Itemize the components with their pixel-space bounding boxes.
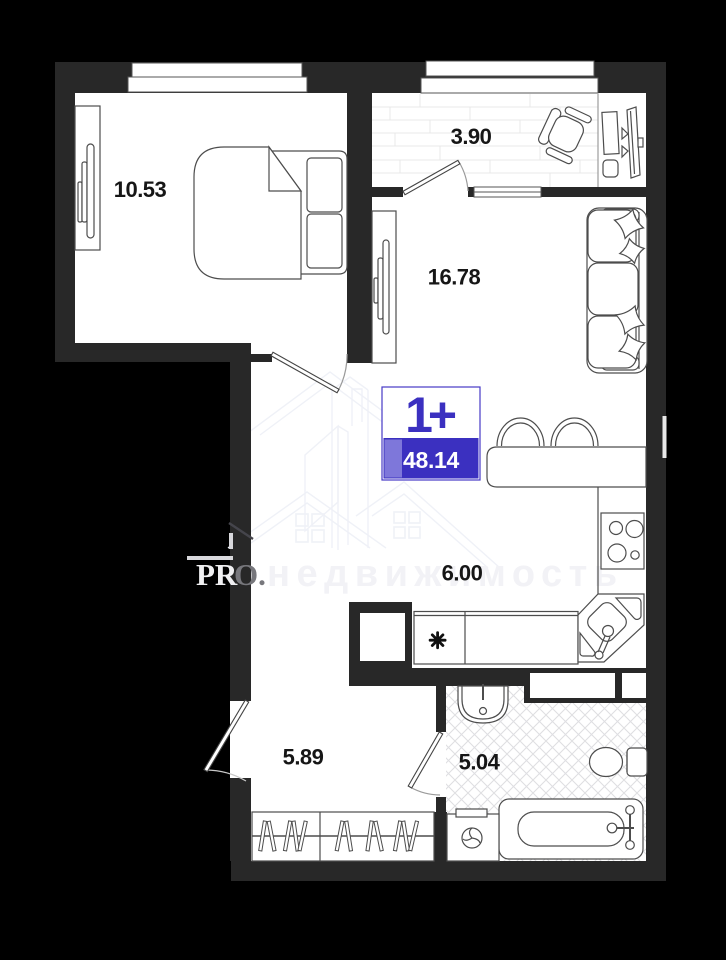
svg-text:16.78: 16.78 xyxy=(428,265,481,290)
svg-text:10.53: 10.53 xyxy=(114,177,167,202)
svg-text:3.90: 3.90 xyxy=(451,124,492,149)
svg-text:48.14: 48.14 xyxy=(403,447,460,473)
svg-text:PR: PR xyxy=(196,557,238,592)
svg-text:6.00: 6.00 xyxy=(442,561,483,586)
svg-text:O.: O. xyxy=(234,557,266,592)
svg-text:5.89: 5.89 xyxy=(283,745,324,770)
svg-text:+: + xyxy=(428,387,457,443)
svg-text:5.04: 5.04 xyxy=(459,750,501,775)
